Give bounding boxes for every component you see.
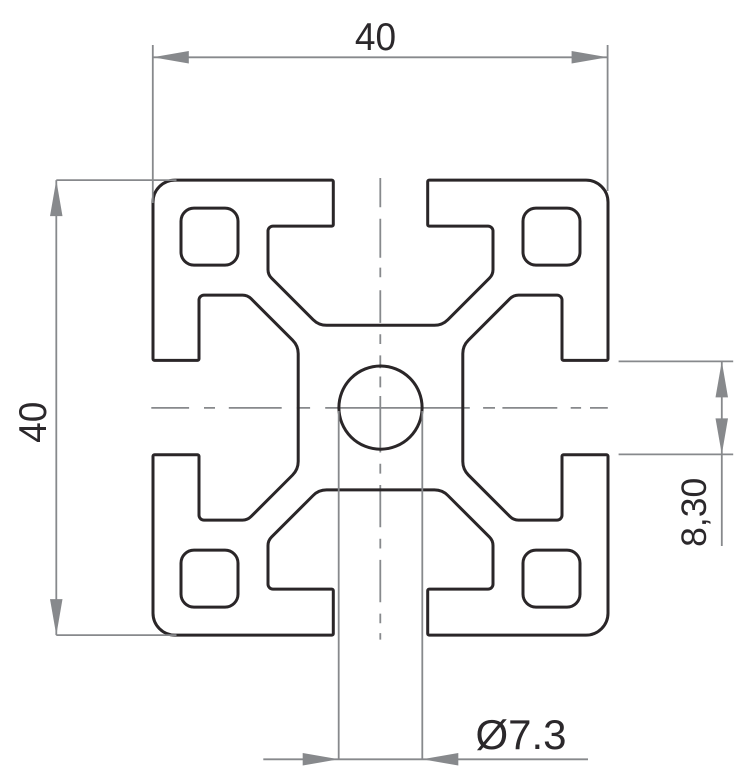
svg-text:8,30: 8,30	[674, 478, 714, 547]
svg-text:40: 40	[355, 16, 396, 59]
svg-text:Ø7.3: Ø7.3	[475, 711, 566, 758]
svg-text:40: 40	[12, 402, 55, 443]
